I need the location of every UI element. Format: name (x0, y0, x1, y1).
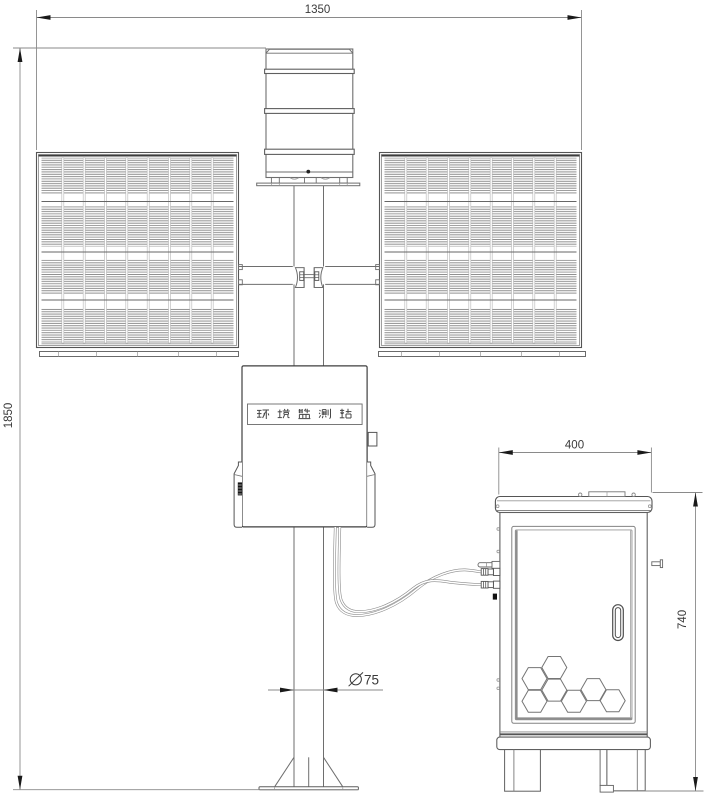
svg-text:1850: 1850 (3, 403, 15, 429)
svg-text:740: 740 (677, 610, 689, 629)
svg-text:1350: 1350 (305, 4, 331, 16)
svg-text:400: 400 (565, 440, 584, 452)
svg-text:75: 75 (364, 673, 379, 688)
